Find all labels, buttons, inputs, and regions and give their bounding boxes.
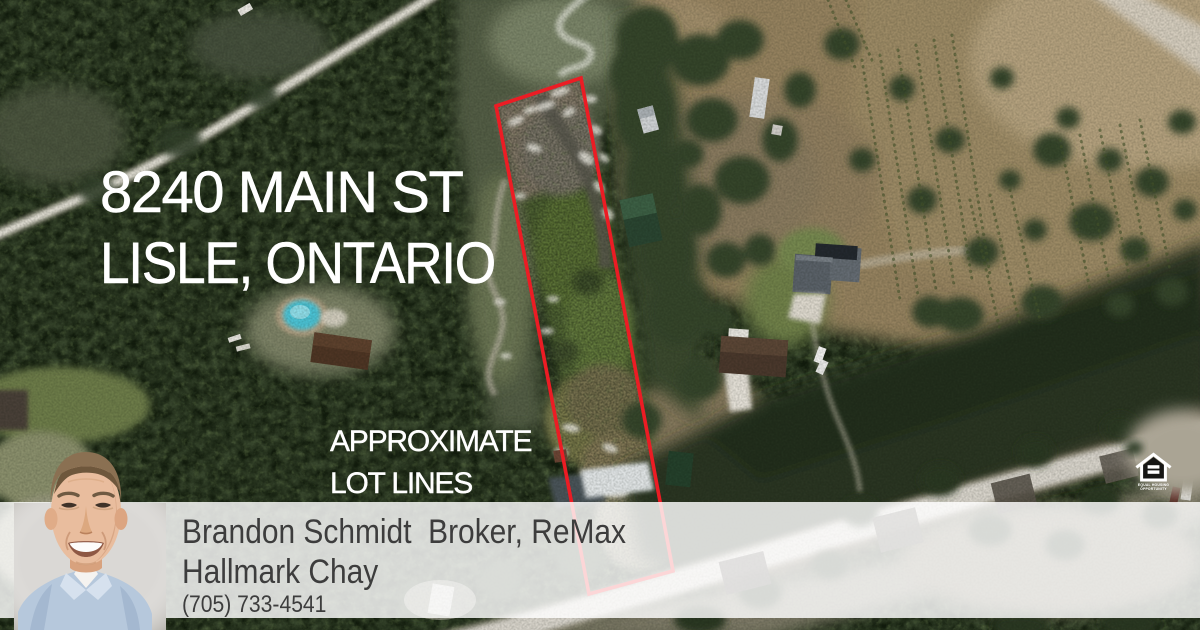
svg-text:OPPORTUNITY: OPPORTUNITY bbox=[1140, 487, 1167, 491]
